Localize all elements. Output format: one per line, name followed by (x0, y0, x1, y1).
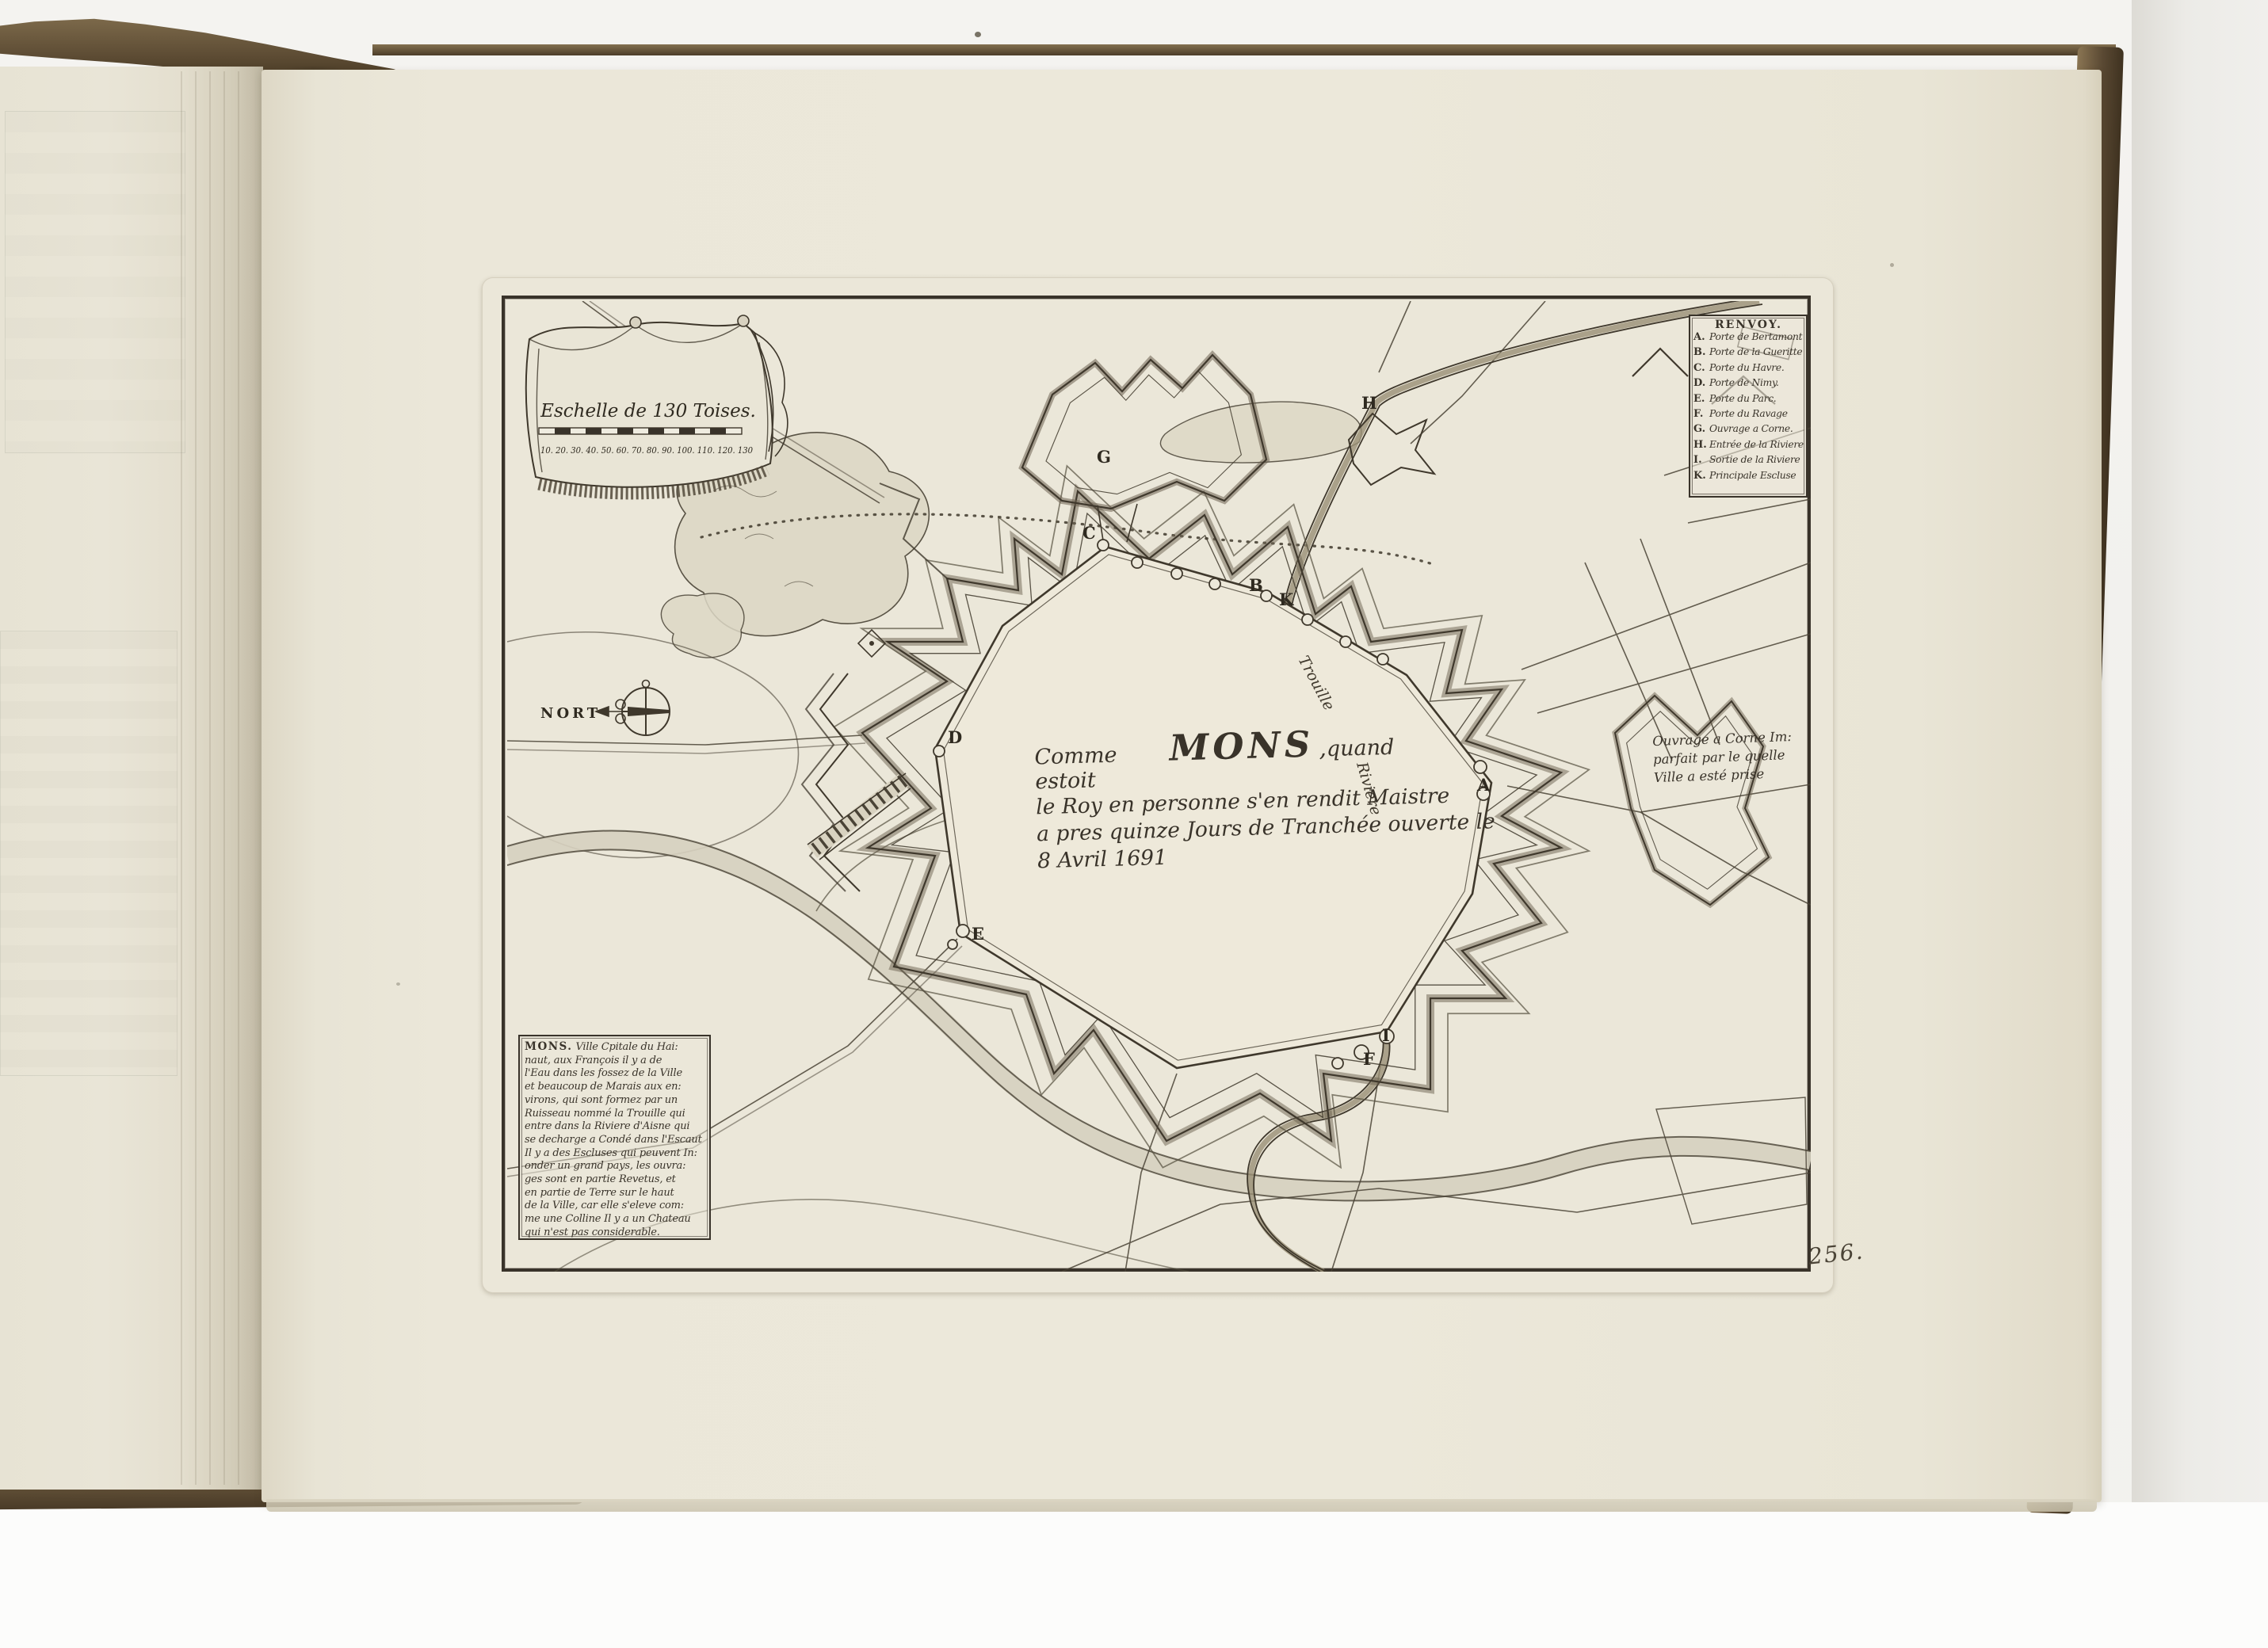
scale-cartouche: Eschelle de 130 Toises. 10. 20. 30. 40. … (526, 315, 788, 494)
description-line: Ruisseau nommé la Trouille qui (525, 1108, 706, 1121)
legend-key: K. (1693, 470, 1709, 482)
marker-k: K (1279, 589, 1294, 609)
legend-label: Porte de Bertamont (1709, 331, 1802, 342)
marker-d: D (948, 727, 962, 747)
legend-row: K. Principale Escluse (1693, 470, 1804, 485)
marker-c: C (1082, 523, 1096, 543)
description-line: onder un grand pays, les ouvra: (525, 1160, 706, 1173)
marker-b: B (1249, 575, 1263, 595)
marker-a: A (1476, 775, 1491, 795)
right-page-bottom-edge (266, 1499, 2097, 1512)
scale-bar (539, 428, 742, 434)
description-line: me une Colline Il y a un Chateau (525, 1213, 706, 1226)
description-line: entre dans la Riviere d'Aisne qui (525, 1120, 706, 1134)
legend-row: C. Porte du Havre. (1693, 362, 1804, 377)
legend-label: Sortie de la Riviere (1709, 454, 1800, 465)
legend-key: H. (1693, 439, 1709, 451)
description-line: de la Ville, car elle s'eleve com: (525, 1200, 706, 1213)
legend-title: RENVOY. (1693, 319, 1804, 331)
legend-row: D. Porte de Nimy. (1693, 377, 1804, 392)
left-page-showthrough-lower (0, 631, 178, 1076)
description-line: qui n'est pas considerable. (525, 1226, 706, 1240)
pond-marker (858, 630, 885, 657)
marker-e: E (972, 924, 984, 944)
foxing-spot (396, 982, 400, 986)
legend-box: RENVOY. A. Porte de Bertamont B. Porte d… (1689, 315, 1808, 498)
star-work-h (1349, 414, 1434, 485)
description-line: Il y a des Escluses qui peuvent In: (525, 1147, 706, 1161)
legend-label: Porte de Nimy. (1709, 377, 1779, 388)
book-cover-top-edge (372, 44, 2116, 55)
description-box: MONS. Ville Cpitale du Hai: naut, aux Fr… (518, 1035, 711, 1240)
table-surface-bottom (0, 1502, 2268, 1648)
book-scan: A B C D E F G H I K Trouille Riviere NOR… (0, 0, 2268, 1648)
table-surface-right (2132, 0, 2268, 1648)
legend-key: A. (1693, 331, 1709, 343)
description-line: et beaucoup de Marais aux en: (525, 1081, 706, 1094)
description-lead: MONS. (525, 1040, 573, 1053)
foxing-spot (1890, 263, 1894, 267)
legend-label: Porte du Havre. (1709, 362, 1784, 373)
title-tail: quand (1326, 735, 1394, 761)
legend-key: E. (1693, 393, 1709, 405)
legend-label: Entrée de la Riviere (1709, 439, 1804, 450)
scale-title: Eschelle de 130 Toises. (540, 401, 756, 422)
legend-key: I. (1693, 454, 1709, 466)
legend-key: F. (1693, 408, 1709, 420)
map-title-block: Comme estoit MONS , quand le Roy en pers… (1034, 721, 1403, 875)
foxing-spot (975, 32, 981, 37)
marker-i: I (1382, 1025, 1390, 1045)
legend-row: F. Porte du Ravage (1693, 408, 1804, 423)
description-line: ges sont en partie Revetus, et (525, 1173, 706, 1187)
title-city-name: MONS (1169, 723, 1315, 769)
marker-g: G (1097, 447, 1111, 467)
description-line: en partie de Terre sur le haut (525, 1187, 706, 1200)
description-line: se decharge a Condé dans l'Escaut (525, 1134, 706, 1147)
legend-key: C. (1693, 362, 1709, 374)
map-title-line-1: Comme estoit MONS , quand (1034, 721, 1400, 795)
title-prefix: Comme estoit (1034, 742, 1159, 794)
hornwork-note: Ouvrage a Corne Im: parfait par le quell… (1652, 726, 1840, 787)
compass-label: NORT (540, 705, 601, 722)
description-line-text: Ville Cpitale du Hai: (575, 1041, 678, 1053)
legend-key: D. (1693, 377, 1709, 389)
description-line: MONS. Ville Cpitale du Hai: (525, 1040, 706, 1055)
marker-h: H (1361, 393, 1377, 413)
compass-rose: NORT (540, 681, 670, 736)
legend-label: Ouvrage a Corne. (1709, 423, 1793, 434)
legend-row: B. Porte de la Gueritte (1693, 346, 1804, 361)
description-line: naut, aux François il y a de (525, 1055, 706, 1068)
legend-key: B. (1693, 346, 1709, 358)
legend-row: H. Entrée de la Riviere (1693, 439, 1804, 454)
legend-label: Porte du Parc. (1709, 393, 1776, 404)
legend-label: Principale Escluse (1709, 470, 1796, 481)
hornwork-imparfait (1615, 696, 1769, 905)
legend-row: I. Sortie de la Riviere (1693, 454, 1804, 469)
legend-row: E. Porte du Parc. (1693, 393, 1804, 408)
legend-row: A. Porte de Bertamont (1693, 331, 1804, 346)
legend-key: G. (1693, 423, 1709, 435)
legend-label: Porte du Ravage (1709, 408, 1788, 419)
legend-label: Porte de la Gueritte (1709, 346, 1802, 357)
scale-ticks: 10. 20. 30. 40. 50. 60. 70. 80. 90. 100.… (540, 444, 753, 456)
description-line: virons, qui sont formez par un (525, 1094, 706, 1108)
left-page-showthrough-upper (5, 111, 185, 453)
marker-f: F (1363, 1049, 1375, 1069)
legend-row: G. Ouvrage a Corne. (1693, 423, 1804, 438)
description-line: l'Eau dans les fossez de la Ville (525, 1067, 706, 1081)
